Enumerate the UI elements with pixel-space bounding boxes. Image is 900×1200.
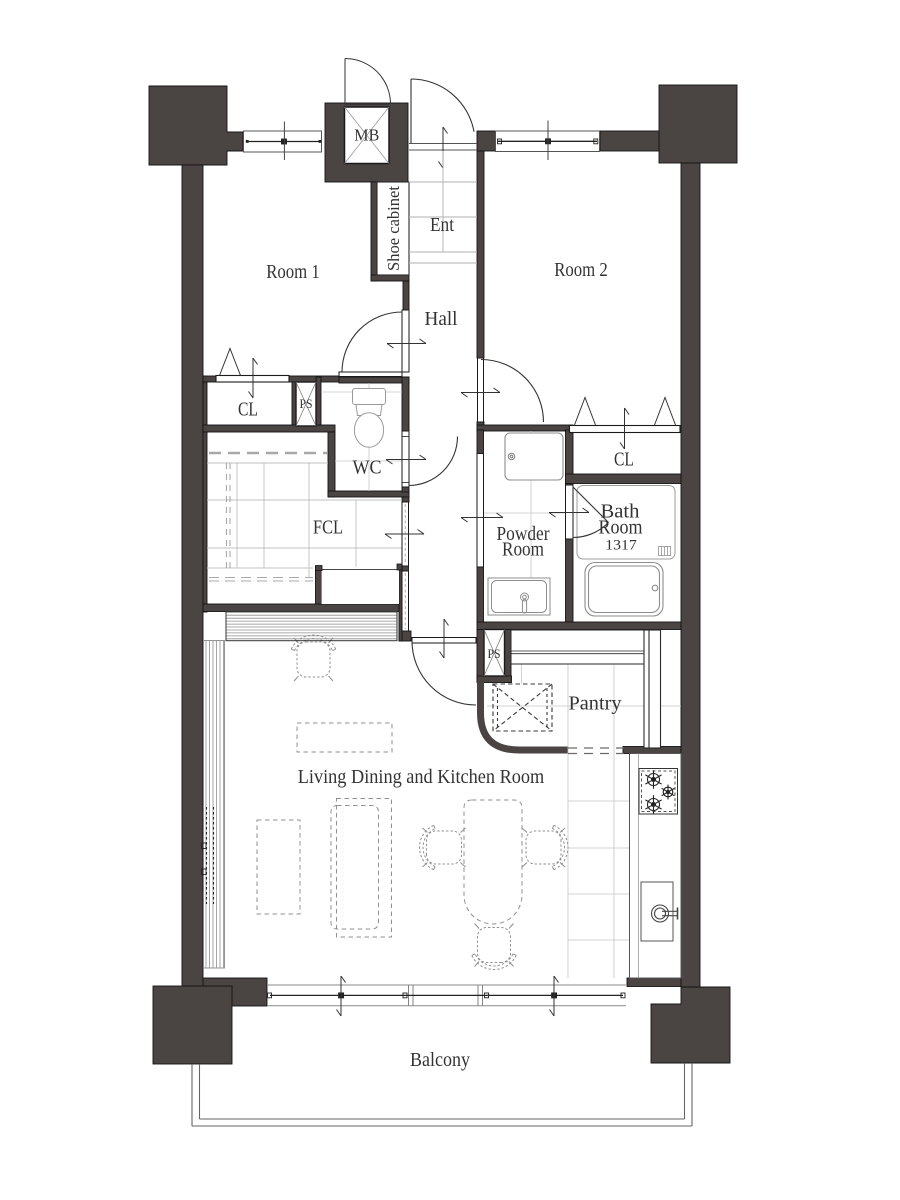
svg-text:PS: PS	[300, 396, 313, 411]
svg-text:CL: CL	[614, 449, 634, 471]
svg-text:CL: CL	[238, 399, 258, 421]
svg-text:Room: Room	[599, 517, 643, 539]
svg-text:MB: MB	[354, 126, 379, 145]
svg-text:Room 2: Room 2	[554, 259, 608, 281]
svg-text:1317: 1317	[605, 538, 637, 554]
svg-text:WC: WC	[353, 457, 382, 479]
svg-text:FCL: FCL	[313, 517, 343, 539]
svg-text:Room: Room	[502, 539, 544, 561]
svg-text:Pantry: Pantry	[569, 693, 622, 715]
svg-text:Hall: Hall	[425, 308, 458, 330]
svg-text:Living Dining and Kitchen Room: Living Dining and Kitchen Room	[298, 766, 545, 788]
svg-text:Room 1: Room 1	[266, 261, 320, 283]
svg-text:Ent: Ent	[430, 214, 454, 236]
svg-text:Shoe cabinet: Shoe cabinet	[384, 186, 403, 271]
svg-text:Balcony: Balcony	[410, 1049, 470, 1071]
svg-text:PS: PS	[488, 646, 501, 661]
